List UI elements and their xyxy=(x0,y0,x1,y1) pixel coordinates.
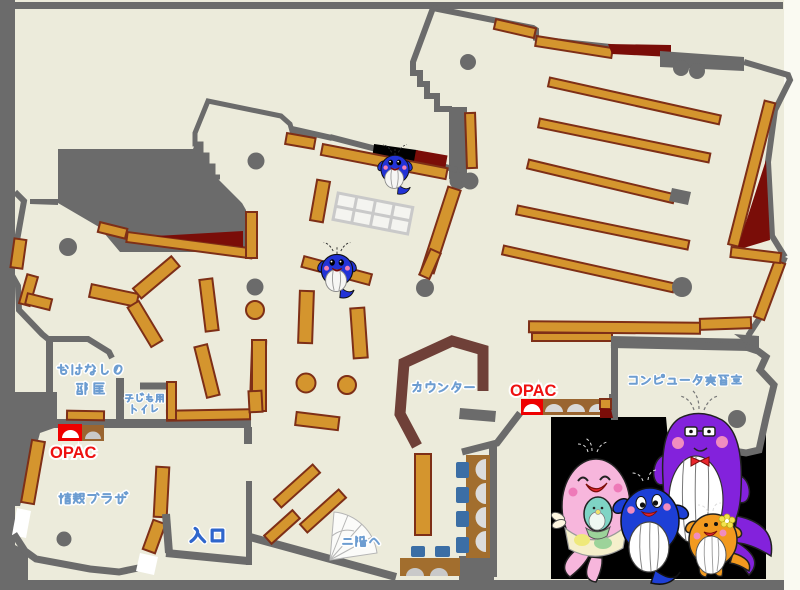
svg-text:OPAC: OPAC xyxy=(50,444,97,462)
svg-text:OPAC: OPAC xyxy=(510,382,557,400)
